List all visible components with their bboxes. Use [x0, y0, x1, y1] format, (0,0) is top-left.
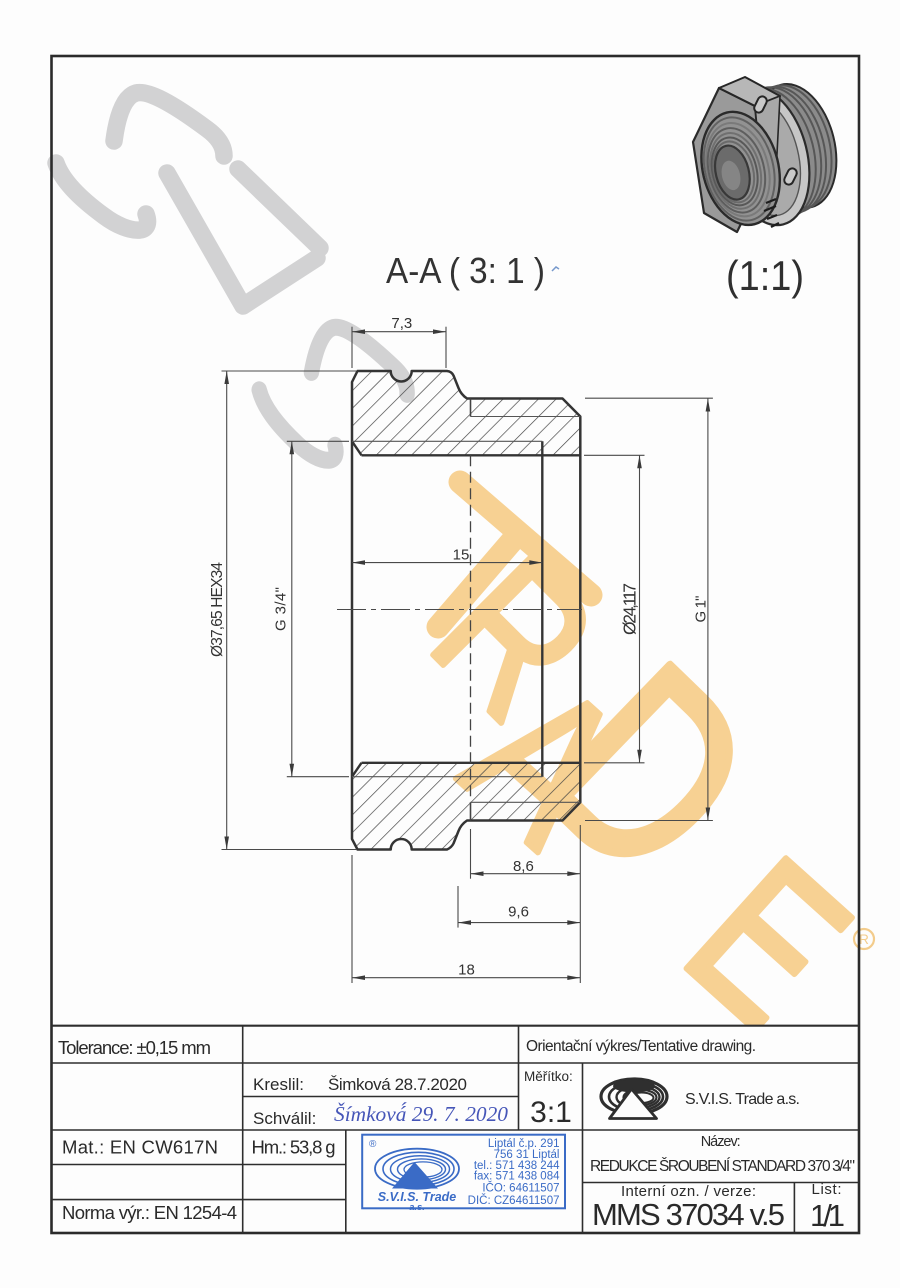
svg-text:DIČ: CZ64611507: DIČ: CZ64611507 — [468, 1194, 560, 1207]
svg-text:Ø37,65 HEX34: Ø37,65 HEX34 — [209, 562, 226, 657]
svg-text:Měřítko:: Měřítko: — [524, 1069, 573, 1084]
svg-text:IČO: 64611507: IČO: 64611507 — [482, 1182, 559, 1195]
svg-text:MMS 37034 v.5: MMS 37034 v.5 — [592, 1197, 785, 1232]
svg-text:3:1: 3:1 — [530, 1096, 572, 1129]
svg-text:G 1": G 1" — [693, 596, 710, 623]
svg-text:(1:1): (1:1) — [726, 252, 804, 299]
svg-text:Šímková́ 29. 7. 2020: Šímková́ 29. 7. 2020 — [334, 1102, 508, 1126]
svg-text:7,3: 7,3 — [391, 315, 412, 332]
svg-text:Název:: Název: — [701, 1134, 741, 1150]
svg-text:Hm.: 53,8 g: Hm.: 53,8 g — [252, 1137, 336, 1158]
svg-text:List:: List: — [812, 1181, 842, 1198]
svg-text:Orientační výkres/Tentative dr: Orientační výkres/Tentative drawing. — [526, 1038, 756, 1055]
svg-text:S.V.I.S. Trade a.s.: S.V.I.S. Trade a.s. — [685, 1091, 800, 1108]
svg-text:1/1: 1/1 — [810, 1198, 845, 1233]
svg-text:Norma výr.: EN 1254-4: Norma výr.: EN 1254-4 — [62, 1202, 237, 1223]
svg-text:Ø24,117: Ø24,117 — [620, 583, 640, 635]
svg-text:A-A ( 3: 1 ): A-A ( 3: 1 ) — [386, 250, 545, 291]
svg-text:18: 18 — [458, 962, 475, 979]
svg-text:Šimková 28.7.2020: Šimková 28.7.2020 — [328, 1075, 467, 1094]
svg-text:REDUKCE ŠROUBENÍ STANDARD 370: REDUKCE ŠROUBENÍ STANDARD 370 3/4" — [590, 1158, 855, 1175]
svg-text:R: R — [859, 932, 869, 947]
svg-text:9,6: 9,6 — [508, 904, 529, 921]
svg-text:Mat.: EN CW617N: Mat.: EN CW617N — [62, 1137, 218, 1158]
svg-text:Kreslil:: Kreslil: — [253, 1075, 304, 1094]
svg-text:®: ® — [369, 1139, 377, 1150]
svg-text:15: 15 — [453, 547, 470, 564]
svg-text:8,6: 8,6 — [513, 858, 534, 875]
svg-text:Tolerance: ±0,15 mm: Tolerance: ±0,15 mm — [58, 1037, 211, 1058]
svg-text:fax: 571 438 084: fax: 571 438 084 — [474, 1171, 560, 1183]
svg-text:a.s.: a.s. — [409, 1202, 425, 1213]
svg-text:G 3/4": G 3/4" — [273, 587, 290, 631]
svg-text:Schválil:: Schválil: — [253, 1109, 316, 1128]
